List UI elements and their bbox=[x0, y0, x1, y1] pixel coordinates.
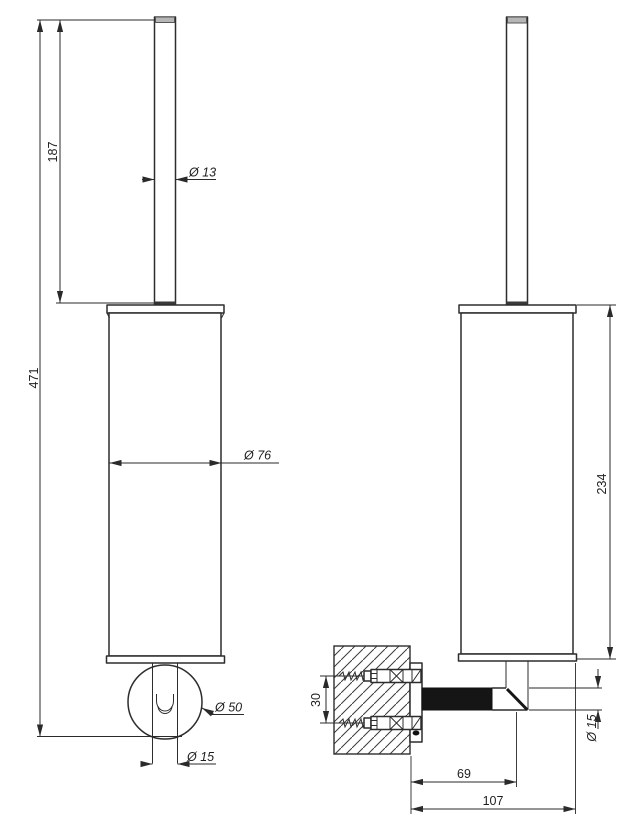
dim-total-height: 471 bbox=[27, 368, 41, 389]
body-bottom-rim-front bbox=[107, 656, 225, 663]
dim-screw-spacing: 30 bbox=[309, 693, 323, 707]
dim-arm-diameter: Ø 15 bbox=[585, 714, 599, 742]
wall-section-hatched bbox=[334, 646, 410, 754]
handle-cap-front bbox=[156, 17, 175, 23]
leader-rosette-50 bbox=[202, 708, 214, 715]
dim-wall-to-front-edge: 107 bbox=[483, 794, 504, 808]
stem-tube-side bbox=[506, 661, 528, 710]
holder-body-side bbox=[461, 313, 573, 654]
technical-drawing-page: 187 471 Ø 13 Ø 76 Ø 50 Ø 15 234 30 Ø 15 … bbox=[0, 0, 634, 827]
dim-handle-length: 187 bbox=[46, 142, 60, 163]
handle-rod-front bbox=[155, 17, 176, 305]
handle-cap-side bbox=[508, 17, 527, 23]
lid-plate-side bbox=[459, 305, 576, 313]
body-bottom-rim-side bbox=[459, 654, 577, 661]
set-screw bbox=[413, 731, 420, 736]
front-view bbox=[107, 17, 225, 764]
dim-rosette-diameter: Ø 50 bbox=[214, 701, 242, 715]
dim-holder-height: 234 bbox=[595, 474, 609, 495]
lid-plate-front bbox=[107, 305, 224, 313]
extension-lines-arm-diameter bbox=[529, 688, 602, 710]
holder-body-front bbox=[109, 313, 221, 656]
wall-rosette-circle bbox=[128, 665, 202, 739]
dim-stem-diameter: Ø 15 bbox=[186, 750, 214, 764]
arm-miter-joint bbox=[507, 689, 527, 710]
side-view bbox=[334, 17, 577, 754]
technical-drawing: 187 471 Ø 13 Ø 76 Ø 50 Ø 15 234 30 Ø 15 … bbox=[0, 0, 634, 827]
dim-wall-to-stem-center: 69 bbox=[457, 767, 471, 781]
mounting-arm-black bbox=[422, 688, 492, 710]
dim-handle-diameter: Ø 13 bbox=[188, 166, 216, 180]
handle-rod-side bbox=[507, 17, 528, 305]
dim-body-diameter: Ø 76 bbox=[243, 449, 271, 463]
